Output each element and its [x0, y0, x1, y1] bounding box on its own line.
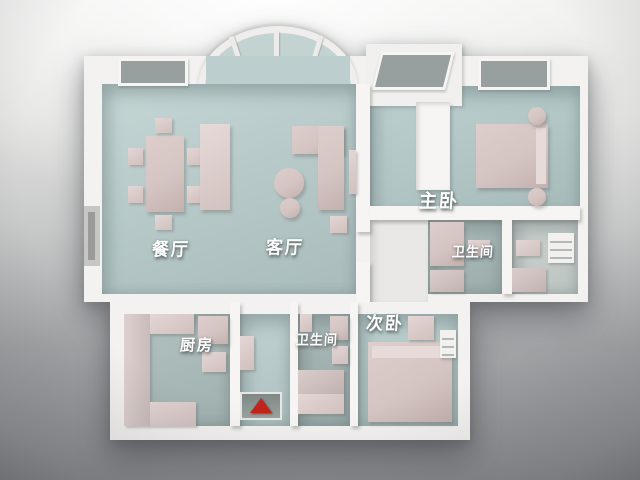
side-stool [330, 216, 347, 233]
sideboard-cabinet [200, 124, 230, 210]
nightstand [528, 188, 546, 206]
kitchen-counter-top [150, 314, 194, 334]
round-armchair [274, 168, 304, 198]
room-label-second-bedroom: 次卧 [365, 308, 405, 335]
room-label-living: 客厅 [265, 232, 305, 259]
dining-chair [155, 118, 172, 133]
entry-bath-wall [290, 302, 298, 426]
room-label-bathroom: 卫生间 [295, 328, 338, 348]
living-master-wall [356, 84, 370, 232]
bath-toilet [332, 346, 348, 364]
dining-table [146, 136, 184, 212]
bath-bedroom-wall [350, 302, 358, 426]
hallway-floor [370, 214, 428, 302]
bedroom-shelf-icon [440, 330, 456, 358]
room-label-kitchen: 厨房 [179, 333, 215, 355]
room-label-dining: 餐厅 [151, 234, 191, 261]
kitchen-counter-left [124, 314, 150, 426]
bay-window-floor [206, 56, 350, 86]
render-backdrop: 餐厅 客厅 主卧 卫生间 卫生间 厨房 次卧 [0, 0, 640, 480]
room-label-master-bedroom: 主卧 [418, 186, 460, 214]
tv-unit [349, 150, 356, 194]
master-window-icon [478, 58, 550, 90]
living-bay-window-icon [371, 52, 454, 90]
round-ottoman [280, 198, 300, 218]
left-wall-window-glass [88, 212, 95, 260]
ensuite-closet-wall [502, 220, 512, 294]
second-bed-pillows [372, 346, 448, 358]
ensuite-step [430, 270, 464, 292]
kitchen-counter-bottom [150, 402, 196, 426]
nightstand [528, 107, 546, 125]
bath-shower-tray [298, 394, 344, 414]
master-south-wall [370, 206, 580, 220]
master-wardrobe [416, 102, 450, 190]
living-hall-wall [356, 262, 370, 302]
master-bed-pillows [536, 128, 546, 184]
floorplan-model: 餐厅 客厅 主卧 卫生间 卫生间 厨房 次卧 [0, 0, 640, 480]
dining-chair [155, 215, 172, 230]
bay-window-mullion-icon [274, 31, 279, 58]
closet-shelf-icon [548, 233, 574, 263]
second-wardrobe [408, 316, 434, 340]
closet-step [512, 268, 546, 292]
entrance-marker-cone [250, 398, 272, 413]
room-label-ensuite-bathroom: 卫生间 [451, 240, 494, 260]
dining-chair [128, 186, 143, 203]
dining-window-icon [118, 58, 188, 86]
bath-shower-step [298, 370, 344, 394]
dining-chair [128, 148, 143, 165]
closet-bench [516, 240, 540, 256]
kitchen-entry-wall [230, 302, 240, 426]
sofa-chaise [318, 126, 344, 210]
entry-cabinet [240, 336, 254, 370]
